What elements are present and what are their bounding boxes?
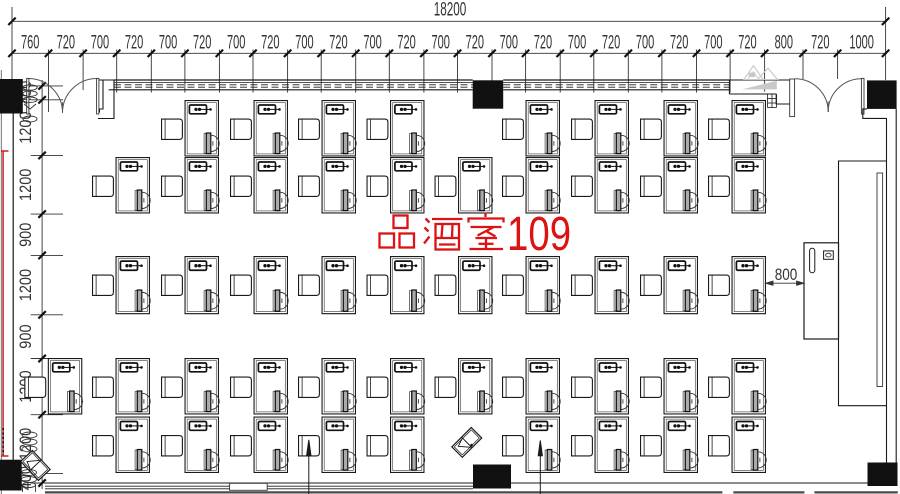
svg-text:700: 700 xyxy=(500,33,519,54)
svg-text:720: 720 xyxy=(57,33,76,54)
svg-text:1200: 1200 xyxy=(17,168,35,201)
svg-text:109: 109 xyxy=(507,208,571,261)
svg-text:720: 720 xyxy=(397,33,416,54)
svg-text:720: 720 xyxy=(193,33,212,54)
svg-text:720: 720 xyxy=(738,33,757,54)
svg-text:760: 760 xyxy=(21,33,40,54)
svg-text:700: 700 xyxy=(363,33,382,54)
svg-text:700: 700 xyxy=(227,33,246,54)
svg-text:720: 720 xyxy=(261,33,280,54)
svg-text:700: 700 xyxy=(159,33,178,54)
svg-text:700: 700 xyxy=(704,33,723,54)
svg-text:1000: 1000 xyxy=(849,33,874,54)
svg-text:720: 720 xyxy=(811,33,830,54)
svg-text:720: 720 xyxy=(670,33,689,54)
svg-text:900: 900 xyxy=(17,324,35,349)
svg-text:720: 720 xyxy=(602,33,621,54)
svg-text:800: 800 xyxy=(775,266,798,285)
svg-text:700: 700 xyxy=(295,33,314,54)
svg-text:700: 700 xyxy=(568,33,587,54)
svg-text:720: 720 xyxy=(466,33,485,54)
svg-text:1200: 1200 xyxy=(17,269,35,302)
svg-text:720: 720 xyxy=(329,33,348,54)
svg-text:18200: 18200 xyxy=(434,0,467,20)
svg-text:720: 720 xyxy=(534,33,553,54)
svg-text:700: 700 xyxy=(432,33,451,54)
svg-text:700: 700 xyxy=(91,33,110,54)
svg-text:700: 700 xyxy=(636,33,655,54)
svg-text:900: 900 xyxy=(17,222,35,247)
svg-text:720: 720 xyxy=(125,33,144,54)
svg-text:800: 800 xyxy=(775,33,794,54)
